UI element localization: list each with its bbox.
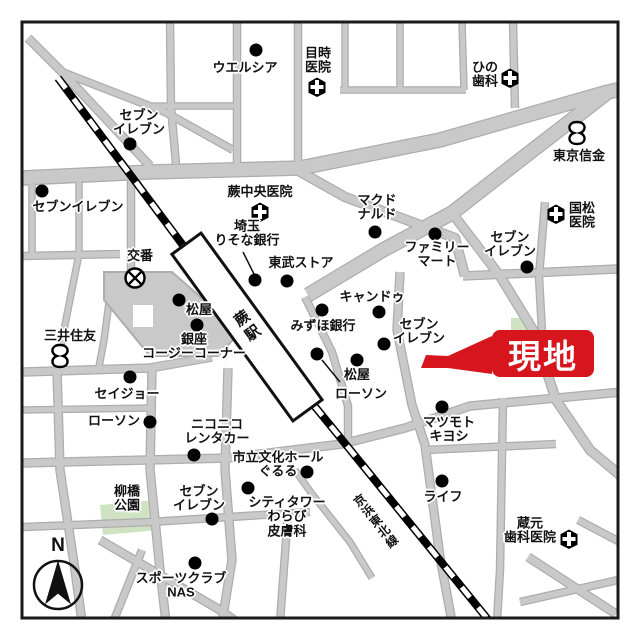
genchi-marker-label: 現地 [508, 330, 578, 378]
life-supermarket-dot [436, 475, 449, 488]
sports-club-nas-dot [189, 557, 202, 570]
matsuya-east-dot [351, 354, 364, 367]
metoki-clinic-hospital-icon [307, 77, 328, 98]
mizuho-bank-dot [316, 304, 329, 317]
matsumoto-kiyoshi-dot [436, 401, 449, 414]
cando-dot [373, 306, 386, 319]
mcdonalds-dot [369, 226, 382, 239]
koban-police-icon [123, 266, 147, 290]
seven-eleven-south-dot [206, 513, 219, 526]
seven-eleven-center-dot [378, 338, 391, 351]
mitsui-sumitomo-bank-bank-icon [48, 343, 72, 370]
tokyo-shinkin-bank-bank-icon [565, 120, 589, 147]
tobu-store-dot [281, 275, 294, 288]
seven-eleven-west-dot [36, 185, 49, 198]
hino-dental-hospital-icon [500, 68, 521, 89]
city-tower-warabi-dermatology-dot [242, 482, 255, 495]
kunimatsu-clinic-hospital-icon [546, 204, 567, 225]
compass-north-label: N [51, 535, 65, 557]
genchi-arrow [421, 336, 492, 374]
lawson-west-dot [144, 416, 157, 429]
familymart-dot [429, 228, 442, 241]
seven-eleven-north-dot [124, 138, 137, 151]
ginza-cozy-corner-dot [191, 319, 204, 332]
resona-connector-line [243, 252, 254, 274]
seven-eleven-east-dot [521, 261, 534, 274]
city-culture-hall-gururu-dot [301, 466, 314, 479]
welcia-dot [250, 44, 263, 57]
kuramoto-dental-clinic-hospital-icon [559, 529, 580, 550]
lawson-center-dot [311, 348, 324, 361]
niconico-rentacar-dot [188, 449, 201, 462]
saitama-resona-bank-dot [249, 274, 262, 287]
matsuya-west-dot [173, 294, 186, 307]
seijo-dot [124, 371, 137, 384]
genchi-marker: 現地 [492, 330, 594, 377]
warabi-chuo-clinic-hospital-icon [250, 202, 271, 223]
map-canvas: ウエルシア目時医院ひの歯科東京信金セブンイレブンセブンイレブン蕨中央医院マクドナ… [0, 0, 640, 640]
